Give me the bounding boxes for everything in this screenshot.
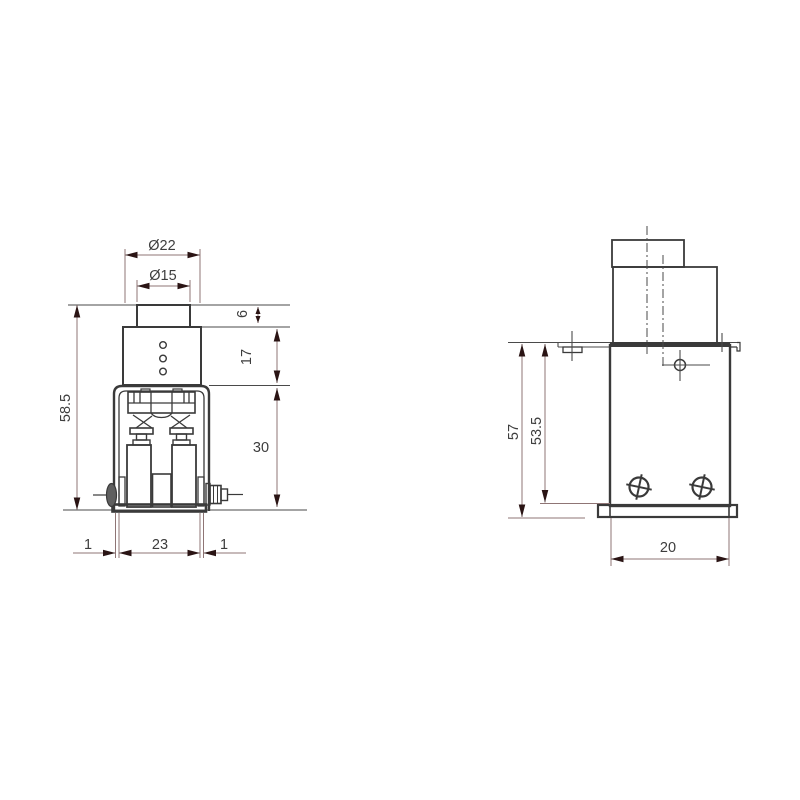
dim-label-dia22: Ø22 (148, 238, 175, 254)
right-bolt (206, 484, 243, 506)
dim-dia15: Ø15 (137, 268, 190, 302)
body-holes (160, 342, 167, 375)
right-roller (172, 445, 196, 507)
dim-label-23: 23 (152, 537, 168, 553)
side-upper-body (613, 267, 717, 344)
front-extension-lines (63, 305, 307, 510)
left-screw (93, 484, 117, 507)
dim-label-1-left: 1 (84, 537, 92, 553)
dim-label-57: 57 (506, 424, 522, 440)
left-roller (127, 445, 151, 507)
dim-label-17: 17 (239, 349, 255, 365)
front-object (93, 305, 243, 512)
dim-label-58-5: 58.5 (58, 394, 74, 422)
rollers (119, 445, 204, 507)
dim-neck-height: 17 (239, 329, 277, 383)
dim-total-height-side: 57 (506, 344, 522, 517)
dim-body-width-side: 20 (611, 518, 729, 566)
side-dimensions: 57 53.5 20 (506, 344, 729, 566)
center-block (153, 474, 172, 507)
dim-label-53-5: 53.5 (529, 417, 545, 445)
inner-top-assembly (128, 389, 195, 413)
dim-label-30: 30 (253, 440, 269, 456)
dim-label-dia15: Ø15 (149, 268, 176, 284)
dim-body-height-side: 53.5 (529, 344, 545, 503)
side-lower-body (610, 345, 730, 506)
technical-drawing-canvas: Ø22 Ø15 6 17 30 58.5 (0, 0, 800, 800)
dim-knob-height: 6 (235, 307, 258, 323)
drawing-svg: Ø22 Ø15 6 17 30 58.5 (0, 0, 800, 800)
dim-total-height-front: 58.5 (58, 305, 77, 510)
top-screw (662, 350, 710, 381)
inner-linkage (130, 413, 193, 445)
side-view: 57 53.5 20 (506, 226, 740, 566)
housing-inner-wall (119, 391, 204, 506)
base-bar (113, 505, 207, 512)
left-mount-screw (624, 472, 655, 503)
dim-label-1-right: 1 (220, 537, 228, 553)
side-cap (612, 240, 684, 267)
dim-label-6: 6 (235, 310, 251, 318)
side-object (508, 226, 740, 517)
top-knob (137, 305, 190, 327)
right-mount-screw (687, 472, 718, 503)
front-view: Ø22 Ø15 6 17 30 58.5 (58, 238, 307, 558)
mounting-flange (508, 331, 740, 361)
dim-housing-height: 30 (253, 388, 277, 507)
dim-label-20: 20 (660, 540, 676, 556)
dim-base-width-group: 1 23 1 (73, 513, 246, 558)
